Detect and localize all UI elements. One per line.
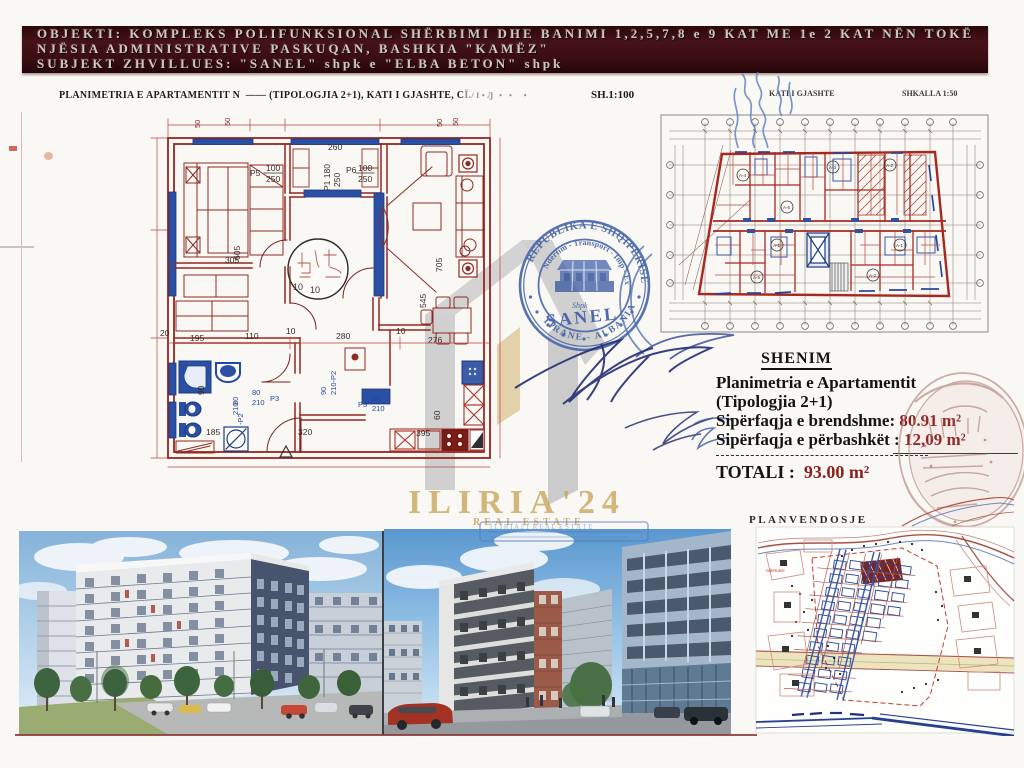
svg-text:10: 10 [286, 326, 296, 336]
svg-text:80: 80 [252, 388, 260, 397]
svg-text:P6: P6 [346, 165, 357, 175]
svg-text:185: 185 [206, 427, 220, 437]
svg-text:250: 250 [332, 173, 342, 187]
svg-text:-P2: -P2 [236, 413, 245, 425]
svg-text:90: 90 [196, 385, 206, 395]
svg-text:A-6: A-6 [783, 205, 791, 210]
svg-text:90: 90 [319, 387, 328, 395]
svg-text:210: 210 [252, 398, 265, 407]
svg-text:705: 705 [434, 258, 444, 272]
svg-text:P3: P3 [358, 400, 367, 409]
svg-text:50: 50 [435, 119, 444, 127]
svg-text:ndertuesi: ndertuesi [766, 568, 785, 573]
svg-text:210-P2: 210-P2 [329, 371, 338, 395]
svg-text:195: 195 [190, 333, 204, 343]
svg-text:20: 20 [160, 328, 170, 338]
svg-text:I L I R I A 2 1 R E A L E S: I L I R I A 2 1 R E A L E S T A T E [490, 523, 593, 531]
svg-text:280: 280 [336, 331, 350, 341]
svg-text:P1 180: P1 180 [322, 164, 332, 191]
svg-text:605: 605 [232, 246, 242, 260]
svg-text:110: 110 [245, 331, 259, 341]
svg-text:276: 276 [428, 335, 442, 345]
svg-text:250: 250 [266, 174, 280, 184]
svg-text:A-2: A-2 [869, 273, 877, 278]
svg-text:P5: P5 [250, 168, 261, 178]
svg-text:50: 50 [451, 118, 460, 126]
svg-text:100: 100 [266, 163, 280, 173]
svg-text:50: 50 [193, 120, 202, 128]
svg-text:100: 100 [358, 163, 372, 173]
svg-text:10: 10 [310, 285, 320, 295]
svg-text:A-1: A-1 [896, 243, 904, 248]
svg-text:320: 320 [298, 427, 312, 437]
svg-text:60: 60 [432, 410, 442, 420]
svg-text:250: 250 [358, 174, 372, 184]
svg-text:A-1: A-1 [773, 243, 781, 248]
svg-text:A-4: A-4 [739, 173, 747, 178]
svg-text:210: 210 [231, 402, 240, 415]
svg-text:P3: P3 [270, 394, 279, 403]
svg-text:395: 395 [416, 428, 430, 438]
svg-text:210: 210 [372, 404, 385, 413]
svg-text:A-5: A-5 [753, 275, 761, 280]
svg-text:10: 10 [396, 326, 406, 336]
svg-text:260: 260 [328, 142, 342, 152]
svg-text:A-3: A-3 [829, 165, 837, 170]
svg-text:545: 545 [418, 294, 428, 308]
svg-text:A-2: A-2 [886, 163, 894, 168]
svg-text:10: 10 [293, 282, 303, 292]
svg-text:90: 90 [372, 394, 380, 403]
svg-text:50: 50 [223, 118, 232, 126]
